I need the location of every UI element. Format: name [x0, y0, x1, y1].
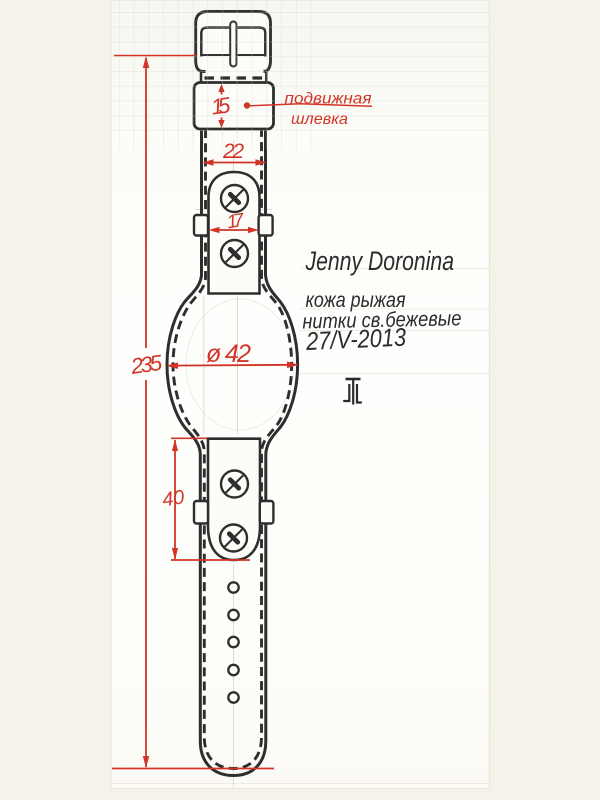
svg-text:подвижная: подвижная	[285, 91, 372, 108]
svg-text:ø 42: ø 42	[206, 340, 251, 368]
svg-text:40: 40	[161, 486, 186, 511]
svg-text:235: 235	[128, 350, 164, 379]
svg-text:Jenny Doronina: Jenny Doronina	[305, 246, 454, 276]
svg-text:27/V-2013: 27/V-2013	[305, 324, 407, 356]
svg-text:шлевка: шлевка	[291, 111, 348, 128]
svg-text:22: 22	[222, 140, 244, 163]
